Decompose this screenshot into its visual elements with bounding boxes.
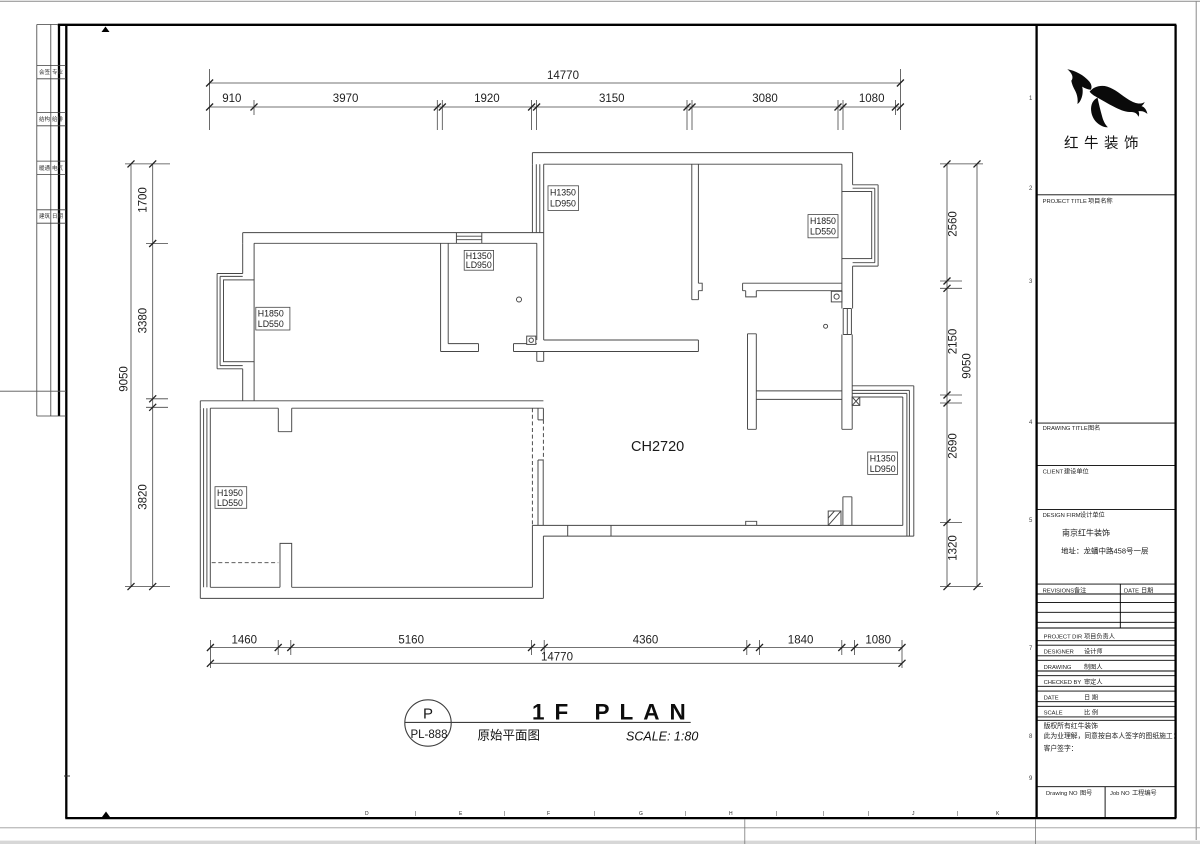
svg-text:DESIGNER: DESIGNER: [1044, 650, 1074, 656]
svg-text:DRAWING TITLE: DRAWING TITLE: [1043, 426, 1088, 432]
svg-text:LD950: LD950: [466, 260, 492, 270]
svg-text:1320: 1320: [948, 535, 960, 561]
svg-text:|: |: [504, 811, 505, 817]
svg-text:图名: 图名: [1088, 424, 1100, 432]
svg-text:H: H: [729, 811, 733, 817]
svg-text:工程编号: 工程编号: [1132, 789, 1157, 797]
svg-text:1080: 1080: [859, 93, 885, 105]
svg-text:2690: 2690: [948, 433, 960, 459]
svg-text:K: K: [996, 811, 1000, 817]
svg-text:5160: 5160: [398, 635, 424, 647]
svg-text:客户签字：: 客户签字：: [1044, 744, 1078, 753]
svg-text:建筑: 建筑: [39, 212, 51, 220]
svg-text:1460: 1460: [232, 635, 258, 647]
svg-text:CLIENT: CLIENT: [1043, 470, 1064, 476]
svg-text:H1850: H1850: [258, 309, 284, 319]
svg-text:设计师: 设计师: [1084, 648, 1103, 656]
svg-text:1080: 1080: [865, 635, 891, 647]
svg-text:专业: 专业: [52, 68, 64, 76]
svg-text:|: |: [594, 811, 595, 817]
svg-text:|: |: [823, 811, 824, 817]
svg-text:F: F: [547, 811, 550, 817]
svg-text:LD550: LD550: [217, 498, 243, 508]
svg-text:设计单位: 设计单位: [1080, 511, 1105, 519]
svg-text:项目名称: 项目名称: [1088, 197, 1113, 205]
svg-text:LD550: LD550: [810, 227, 836, 237]
svg-text:2560: 2560: [948, 211, 960, 237]
svg-text:结构: 结构: [39, 115, 51, 123]
svg-text:14770: 14770: [541, 652, 573, 664]
svg-text:|: |: [685, 811, 686, 817]
svg-text:给排: 给排: [52, 115, 64, 123]
svg-text:审定人: 审定人: [1084, 678, 1103, 686]
svg-text:1: 1: [1029, 96, 1033, 102]
svg-text:|: |: [415, 811, 416, 817]
svg-text:日期: 日期: [1141, 587, 1153, 595]
svg-text:PROJECT DIR: PROJECT DIR: [1044, 635, 1083, 641]
svg-text:备注: 备注: [1074, 587, 1086, 595]
svg-text:LD950: LD950: [550, 198, 576, 208]
svg-text:DRAWING: DRAWING: [1044, 665, 1072, 671]
svg-text:910: 910: [222, 93, 241, 105]
svg-text:9050: 9050: [962, 353, 974, 379]
svg-text:LD550: LD550: [258, 319, 284, 329]
svg-text:H1950: H1950: [217, 488, 243, 498]
svg-text:建设单位: 建设单位: [1064, 468, 1089, 476]
svg-text:CH2720: CH2720: [631, 439, 684, 455]
svg-text:J: J: [912, 811, 915, 817]
svg-text:DESIGN FIRM: DESIGN FIRM: [1043, 513, 1081, 519]
svg-text:3380: 3380: [138, 308, 150, 334]
svg-text:图号: 图号: [1080, 790, 1092, 797]
svg-text:2150: 2150: [948, 329, 960, 355]
svg-text:会签: 会签: [39, 68, 51, 76]
svg-text:1840: 1840: [788, 635, 814, 647]
svg-text:P: P: [423, 706, 433, 723]
svg-text:PROJECT TITLE: PROJECT TITLE: [1043, 199, 1087, 205]
svg-text:14770: 14770: [547, 70, 579, 82]
svg-text:4360: 4360: [633, 635, 659, 647]
svg-text:日 期: 日 期: [1084, 694, 1098, 702]
svg-text:4: 4: [1029, 420, 1033, 426]
svg-text:8: 8: [1029, 734, 1033, 740]
svg-text:日期: 日期: [52, 213, 64, 220]
svg-text:版权所有红牛装饰: 版权所有红牛装饰: [1044, 721, 1099, 730]
svg-text:DATE: DATE: [1044, 696, 1059, 702]
svg-text:3150: 3150: [599, 93, 625, 105]
svg-text:REVISIONS: REVISIONS: [1043, 589, 1075, 595]
svg-text:3970: 3970: [333, 93, 359, 105]
svg-text:CHECKED BY: CHECKED BY: [1044, 680, 1082, 686]
svg-text:1F PLAN: 1F PLAN: [532, 700, 696, 725]
svg-text:暖通: 暖通: [39, 164, 51, 172]
svg-text:H1350: H1350: [870, 453, 896, 463]
svg-text:SCALE: 1:80: SCALE: 1:80: [626, 730, 698, 744]
svg-text:红牛装饰: 红牛装饰: [1064, 135, 1144, 152]
svg-text:电气: 电气: [52, 164, 64, 172]
svg-text:南京红牛装饰: 南京红牛装饰: [1062, 528, 1110, 538]
svg-text:Drawing NO: Drawing NO: [1046, 791, 1078, 797]
svg-text:此为业理解，同意按自本人签字的图纸施工：: 此为业理解，同意按自本人签字的图纸施工：: [1044, 731, 1180, 740]
svg-text:3: 3: [1029, 279, 1033, 285]
svg-text:9050: 9050: [118, 366, 130, 392]
svg-text:D: D: [365, 811, 369, 817]
svg-text:|: |: [776, 811, 777, 817]
svg-text:SCALE: SCALE: [1044, 711, 1063, 717]
svg-text:7: 7: [1029, 646, 1033, 652]
svg-text:Job NO: Job NO: [1110, 791, 1130, 797]
svg-text:G: G: [639, 811, 643, 817]
svg-text:|: |: [957, 811, 958, 817]
svg-text:5: 5: [1029, 518, 1033, 524]
svg-text:地址：龙蟠中路458号一层: 地址：龙蟠中路458号一层: [1061, 546, 1149, 556]
svg-text:9: 9: [1029, 776, 1033, 782]
svg-text:项目负责人: 项目负责人: [1084, 633, 1115, 641]
svg-text:DATE: DATE: [1124, 589, 1139, 595]
svg-text:H1350: H1350: [550, 187, 576, 197]
svg-text:原始平面图: 原始平面图: [478, 729, 541, 743]
svg-text:比 例: 比 例: [1084, 709, 1098, 717]
svg-text:制图人: 制图人: [1084, 663, 1103, 671]
svg-text:LD950: LD950: [870, 464, 896, 474]
svg-text:H1850: H1850: [810, 216, 836, 226]
svg-text:1920: 1920: [474, 93, 500, 105]
svg-text:E: E: [459, 811, 463, 817]
svg-text:2: 2: [1029, 186, 1033, 192]
svg-text:1700: 1700: [138, 187, 150, 213]
svg-text:3820: 3820: [138, 484, 150, 510]
svg-text:|: |: [868, 811, 869, 817]
svg-text:PL-888: PL-888: [410, 729, 447, 741]
svg-text:3080: 3080: [752, 93, 778, 105]
